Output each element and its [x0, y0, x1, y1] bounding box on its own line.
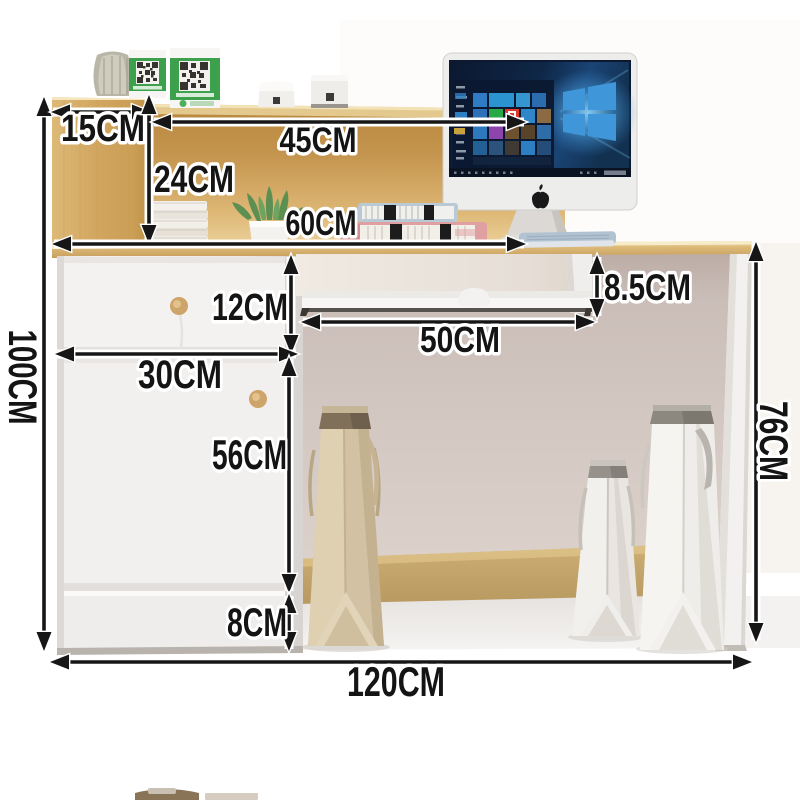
svg-text:60CM: 60CM: [286, 204, 357, 243]
svg-text:8.5CM: 8.5CM: [604, 267, 691, 308]
svg-text:76CM: 76CM: [751, 401, 795, 481]
svg-text:56CM: 56CM: [212, 431, 287, 478]
svg-text:120CM: 120CM: [347, 658, 445, 705]
svg-text:12CM: 12CM: [212, 287, 288, 329]
svg-text:30CM: 30CM: [138, 353, 222, 397]
svg-text:15CM: 15CM: [61, 108, 145, 150]
svg-text:45CM: 45CM: [280, 121, 357, 160]
svg-text:100CM: 100CM: [0, 330, 44, 425]
svg-text:50CM: 50CM: [420, 319, 500, 360]
svg-text:24CM: 24CM: [154, 159, 234, 201]
svg-text:8CM: 8CM: [227, 601, 287, 645]
